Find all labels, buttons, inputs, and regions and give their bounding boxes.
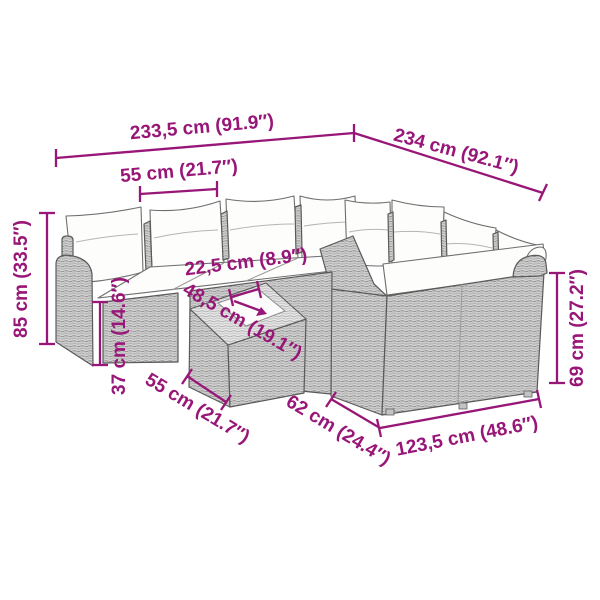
diagram-canvas: 233,5 cm (91.9″) 234 cm (92.1″) 55 cm (2… [0,0,600,600]
product-dimension-diagram: 233,5 cm (91.9″) 234 cm (92.1″) 55 cm (2… [0,0,600,600]
dim-seat-height: 37 cm (14.6″) [92,277,130,395]
dim-total-height: 85 cm (33.5″) [11,213,55,344]
dimension-label-back-height: 69 cm (27.2″) [567,269,588,387]
dimension-label-total-height: 85 cm (33.5″) [11,220,32,338]
dimension-label-seat-width: 55 cm (21.7″) [119,156,238,187]
dimension-label-seat-height: 37 cm (14.6″) [109,277,130,395]
dim-back-height: 69 cm (27.2″) [549,269,588,387]
dimension-label-back-width: 233,5 cm (91.9″) [129,111,275,144]
dim-seat-width: 55 cm (21.7″) [119,156,238,202]
dim-side-length: 234 cm (92.1″) [354,125,547,201]
dimension-label-front-width: 123,5 cm (48.6″) [394,412,540,460]
